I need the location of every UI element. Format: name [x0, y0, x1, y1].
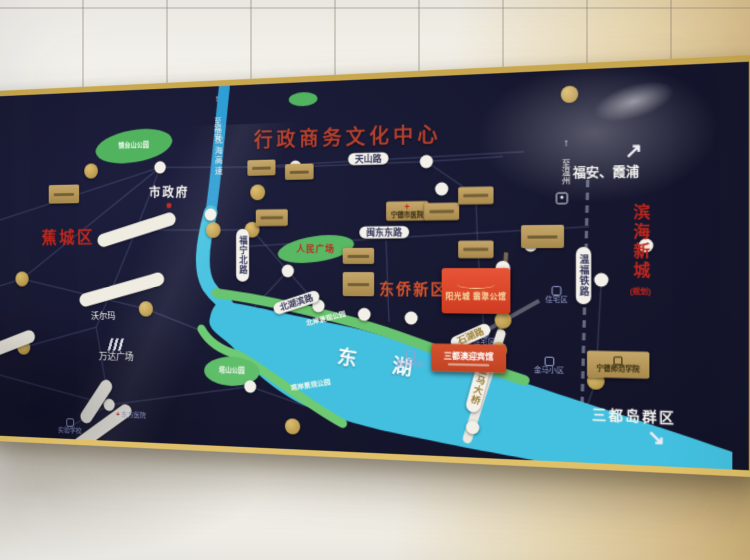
building-block [256, 209, 288, 226]
map-surface: 行政商务文化中心 蕉城区 东侨新区 滨海新城 (规划) 三都岛群区 ↘ 福安、霞… [0, 62, 749, 471]
arrow-up-fuan-icon: ↑ [215, 94, 220, 105]
building-block [343, 272, 374, 296]
poi-dot-gold [285, 418, 300, 434]
road-node-dot [205, 208, 217, 221]
poi-east-hospital: + 东方医院 [116, 412, 146, 421]
road-node-dot [405, 311, 418, 324]
road-node-dot [244, 380, 256, 393]
hospital-cross-icon: + [116, 412, 120, 419]
poi-dot-gold [495, 312, 512, 329]
poi-experimental-school: 实验学校 [58, 418, 82, 436]
estate-icon [544, 357, 554, 367]
place-city-hall: 市政府 [149, 185, 189, 200]
building-block [521, 225, 564, 248]
building-block [285, 163, 314, 180]
map-board: 行政商务文化中心 蕉城区 东侨新区 滨海新城 (规划) 三都岛群区 ↘ 福安、霞… [0, 55, 750, 477]
arrow-se-icon: ↘ [647, 427, 665, 451]
district-binhai-note: (规划) [630, 289, 651, 298]
place-city-hospital: + 宁德市医院 [386, 201, 428, 221]
road-node-dot [358, 308, 371, 321]
photo-scene: 行政商务文化中心 蕉城区 东侨新区 滨海新城 (规划) 三都岛群区 ↘ 福安、霞… [0, 0, 750, 560]
park-jingtaishan: 镜台山公园 [118, 142, 149, 151]
road-node-dot [104, 399, 115, 412]
place-wanda-plaza: 万达广场 [99, 352, 134, 364]
district-sandu-islands: 三都岛群区 [592, 407, 676, 426]
road-wenfu-railway: 温福铁路 [576, 247, 592, 305]
poi-dot-gold [15, 272, 28, 287]
building-block [458, 186, 493, 204]
wall-seam [0, 7, 750, 9]
hotel-subline [448, 363, 489, 366]
college-icon [614, 356, 623, 365]
place-normal-college: 宁德师范学院 [587, 351, 649, 379]
building-block [458, 241, 493, 259]
district-binhai: 滨海新城 [631, 203, 650, 281]
poi-residential-1: 住宅区 [545, 286, 568, 305]
train-station-icon [556, 192, 568, 204]
road-node-dot [466, 421, 480, 435]
ferry-icon [406, 351, 415, 360]
project-sandu-hotel: 三都澳迎宾馆 [431, 343, 506, 373]
project-sunshine-city: 阳光城 翡翠公馆 [442, 268, 511, 314]
building-block [424, 203, 459, 221]
district-dongqiao: 东侨新区 [379, 282, 448, 300]
road-tianshan: 天山路 [348, 152, 389, 166]
park-renmin-square: 人民广场 [296, 244, 335, 254]
place-walmart: 沃尔玛 [91, 312, 116, 323]
direction-to-wenzhou: 至温州 [561, 159, 571, 185]
poi-dot-gold [139, 301, 153, 316]
road-shenhai-expwy: 沈海高速 [213, 136, 222, 177]
poi-jinma-estate: 金马小区 [534, 356, 564, 376]
direction-fuan-xiapu: 福安、霞浦 [573, 166, 639, 182]
poi-ferry-dock: 游船码头 [396, 350, 424, 369]
building-block [247, 159, 275, 175]
building-block [343, 248, 374, 264]
road-node-dot [594, 273, 608, 287]
road-node-dot [282, 265, 294, 278]
arrow-up-wenzhou-icon: ↑ [564, 138, 569, 150]
road-mindong-east: 闽东东路 [359, 226, 409, 239]
city-hall-marker-icon [167, 203, 171, 208]
project-logo-script [457, 280, 495, 288]
school-icon [66, 418, 74, 427]
park-tashan: 塔山公园 [219, 367, 245, 376]
road-funing-north: 福宁北路 [236, 229, 249, 282]
residential-icon [552, 286, 562, 296]
arrow-ne-icon: ↗ [625, 140, 643, 164]
district-jiaocheng: 蕉城区 [42, 228, 95, 248]
small-park-shape [289, 92, 318, 107]
building-block [49, 184, 79, 203]
poi-dot-gold [206, 222, 221, 238]
